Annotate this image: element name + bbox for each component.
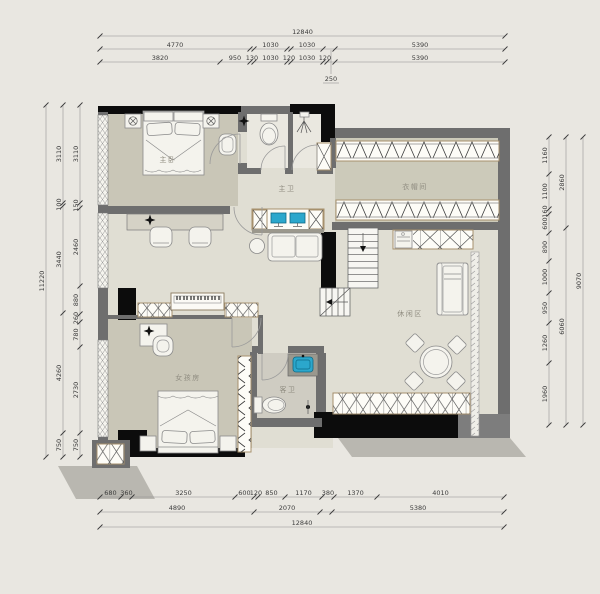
workstation [252,209,324,233]
svg-text:1030: 1030 [299,54,316,62]
svg-text:5390: 5390 [412,54,429,62]
svg-text:3820: 3820 [152,54,169,62]
dim-bottom-row-1: 6803603250600120850117038013704010 [98,489,507,500]
svg-text:2730: 2730 [72,382,80,399]
svg-text:1160: 1160 [541,147,549,164]
svg-text:750: 750 [55,439,63,451]
dim-left-col-3: 311015024608802607802730750 [72,103,83,460]
svg-text:4890: 4890 [169,504,186,512]
svg-text:3110: 3110 [72,146,80,163]
floor-plan-drawing: 主卧 主卫 衣帽间 休闲区 女孩房 客卫 250 128404770103010… [0,0,600,594]
dim-250: 250 [325,75,337,83]
floor-plan-canvas: 主卧 主卫 衣帽间 休闲区 女孩房 客卫 250 128404770103010… [0,0,600,594]
label-master-bedroom: 主卧 [160,155,177,164]
svg-text:1260: 1260 [541,335,549,352]
svg-text:100: 100 [55,198,63,210]
svg-text:360: 360 [120,489,132,497]
dim-top-row-2: 4770103010305390 [98,41,508,52]
svg-text:1960: 1960 [541,386,549,403]
svg-text:750: 750 [72,439,80,451]
guest-toilet [254,397,286,413]
svg-text:850: 850 [265,489,277,497]
svg-text:3250: 3250 [175,489,192,497]
svg-text:680: 680 [104,489,116,497]
svg-text:4260: 4260 [55,365,63,382]
svg-text:880: 880 [72,294,80,306]
svg-text:5380: 5380 [410,504,427,512]
svg-text:12840: 12840 [292,519,313,527]
stair-cabinet [393,230,473,249]
svg-text:260: 260 [72,312,80,324]
window-seat [333,393,470,414]
dim-right-col-2: 28606060 [558,135,569,428]
svg-text:4010: 4010 [432,489,449,497]
label-guest-bath: 客卫 [280,385,297,394]
svg-text:1170: 1170 [295,489,312,497]
label-leisure: 休闲区 [397,309,423,318]
svg-text:780: 780 [72,328,80,340]
svg-text:130: 130 [246,54,258,62]
svg-text:380: 380 [322,489,334,497]
svg-text:2070: 2070 [279,504,296,512]
svg-text:950: 950 [229,54,241,62]
side-table [250,239,265,254]
svg-text:3440: 3440 [55,251,63,268]
girls-bed [158,391,218,453]
svg-text:600: 600 [541,217,549,229]
girls-wardrobe [238,356,251,452]
floor-master-bath [247,113,321,168]
label-cloakroom: 衣帽间 [402,182,428,191]
svg-text:890: 890 [541,241,549,253]
dim-top-row-3: 3820950130103012010301205390 [98,54,508,65]
dim-bottom-row-3: 12840 [98,519,507,530]
label-girls-room: 女孩房 [175,373,201,382]
dim-right-col-1: 9070 [575,135,586,428]
svg-text:160: 160 [541,205,549,217]
svg-text:12840: 12840 [292,28,313,36]
svg-text:1100: 1100 [541,183,549,200]
master-bed [143,111,204,175]
svg-text:120: 120 [319,54,331,62]
svg-text:1030: 1030 [262,54,279,62]
svg-text:150: 150 [72,199,80,211]
dim-top-row-1: 12840 [98,28,508,39]
girls-nightstand-right [220,436,236,451]
svg-text:3110: 3110 [55,146,63,163]
svg-text:120: 120 [283,54,295,62]
svg-text:1370: 1370 [347,489,364,497]
svg-text:9070: 9070 [575,273,583,290]
bedroom-chair [219,134,236,155]
svg-text:4770: 4770 [167,41,184,49]
svg-text:11220: 11220 [38,271,46,292]
piano [171,293,224,310]
svg-text:120: 120 [250,489,262,497]
sofa [268,233,322,261]
dim-right-col-3: 11601100160600890100095012601960 [541,135,552,428]
svg-text:1030: 1030 [299,41,316,49]
svg-text:6060: 6060 [558,318,566,335]
svg-text:1030: 1030 [262,41,279,49]
lounge-chair [437,263,468,315]
guest-vanity [288,354,318,376]
label-master-bath: 主卫 [279,184,296,193]
dim-left-col-1: 11220 [38,103,49,460]
dim-bottom-row-2: 489020705380 [98,504,507,515]
wardrobe-bottom [336,200,499,220]
svg-text:2460: 2460 [72,239,80,256]
girls-nightstand-left [140,436,156,451]
svg-text:1000: 1000 [541,269,549,286]
master-toilet [260,114,278,145]
dim-left-col-2: 311010034404260750 [55,103,66,460]
svg-text:2860: 2860 [558,174,566,191]
svg-text:5390: 5390 [412,41,429,49]
svg-text:950: 950 [541,302,549,314]
wardrobe-top [336,141,499,161]
